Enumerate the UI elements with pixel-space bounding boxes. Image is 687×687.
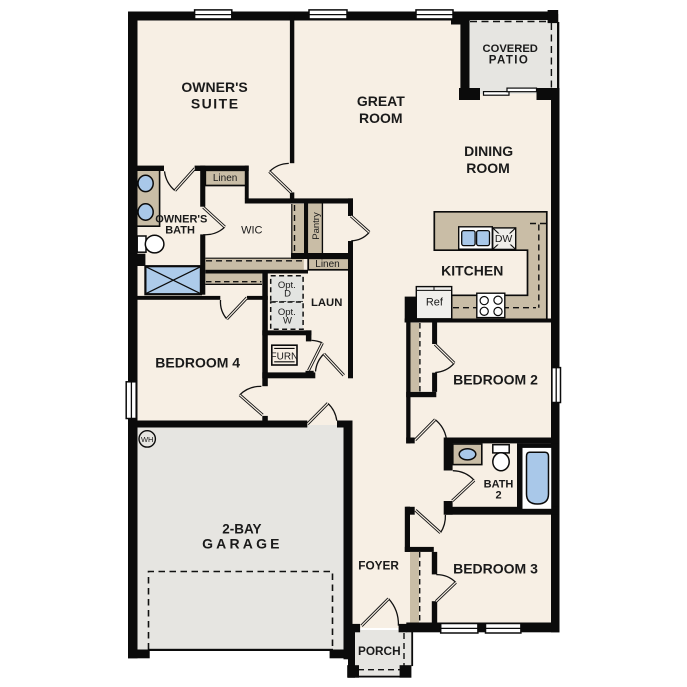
svg-text:DW: DW	[495, 233, 513, 245]
svg-text:COVERED: COVERED	[483, 43, 538, 55]
svg-text:2-BAY: 2-BAY	[222, 521, 261, 536]
svg-text:SUITE: SUITE	[191, 95, 240, 111]
svg-text:PORCH: PORCH	[358, 644, 401, 658]
svg-text:DINING: DINING	[464, 143, 513, 159]
svg-text:BEDROOM 4: BEDROOM 4	[155, 354, 240, 370]
svg-text:GARAGE: GARAGE	[202, 535, 283, 551]
svg-text:2: 2	[495, 489, 501, 501]
svg-text:ROOM: ROOM	[466, 160, 510, 176]
svg-text:Ref: Ref	[426, 296, 444, 308]
svg-text:GREAT: GREAT	[357, 93, 405, 109]
svg-text:PATIO: PATIO	[489, 55, 529, 67]
svg-text:W: W	[283, 316, 292, 327]
svg-text:Linen: Linen	[315, 259, 339, 270]
svg-text:BEDROOM 3: BEDROOM 3	[453, 560, 538, 576]
svg-text:D: D	[284, 289, 291, 300]
svg-text:WIC: WIC	[241, 225, 262, 237]
svg-text:ROOM: ROOM	[359, 110, 403, 126]
svg-text:FURN: FURN	[271, 352, 299, 363]
svg-text:WH: WH	[141, 435, 154, 444]
svg-text:LAUN: LAUN	[311, 297, 342, 309]
svg-text:OWNER'S: OWNER'S	[181, 79, 247, 95]
svg-text:Pantry: Pantry	[311, 212, 322, 240]
svg-text:BEDROOM 2: BEDROOM 2	[453, 371, 538, 387]
svg-text:KITCHEN: KITCHEN	[441, 262, 503, 278]
svg-text:Linen: Linen	[213, 173, 237, 184]
svg-text:OWNER'S: OWNER'S	[155, 213, 207, 225]
svg-text:FOYER: FOYER	[358, 559, 399, 573]
svg-text:BATH: BATH	[165, 225, 195, 237]
